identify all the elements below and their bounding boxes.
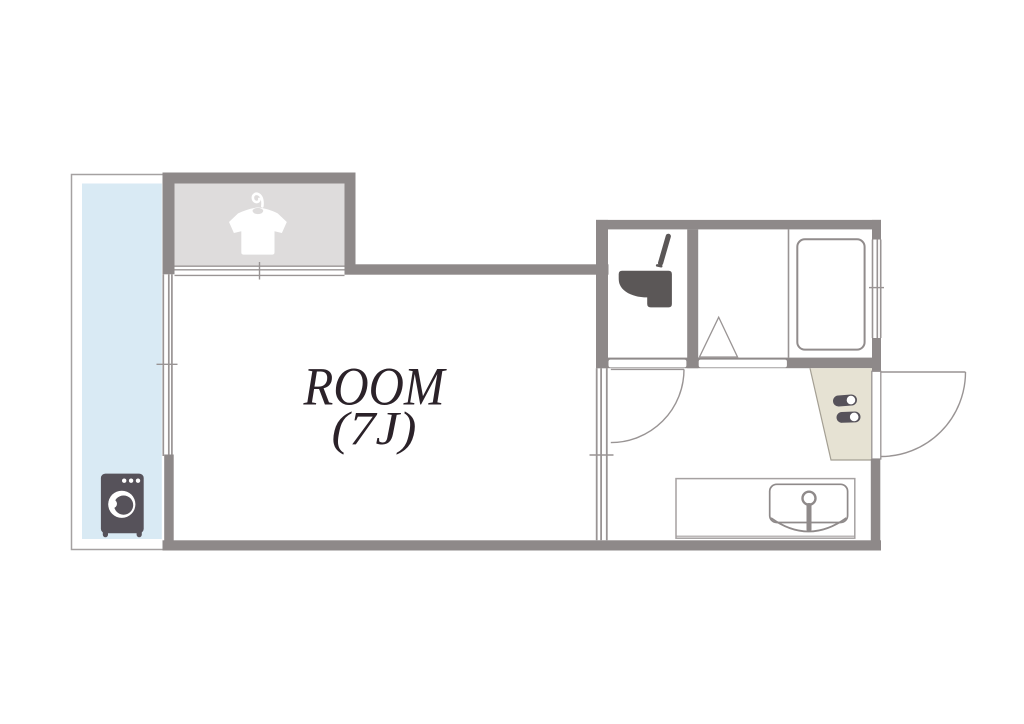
svg-text:(7J): (7J): [332, 403, 417, 456]
